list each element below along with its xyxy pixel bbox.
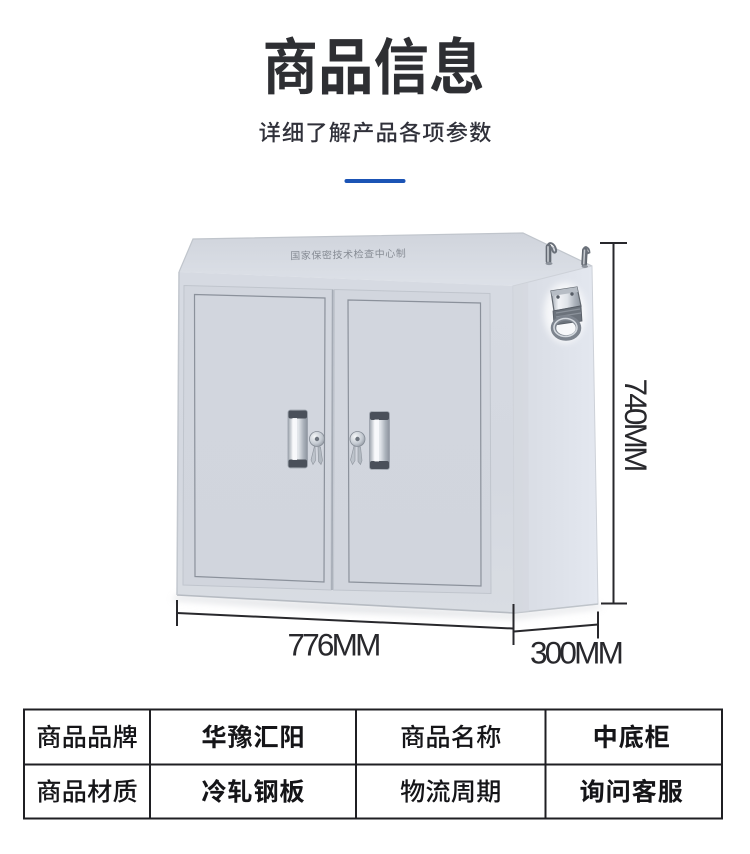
svg-text:776MM: 776MM: [287, 627, 379, 663]
svg-text:740MM: 740MM: [618, 378, 654, 470]
svg-text:300MM: 300MM: [530, 635, 622, 671]
